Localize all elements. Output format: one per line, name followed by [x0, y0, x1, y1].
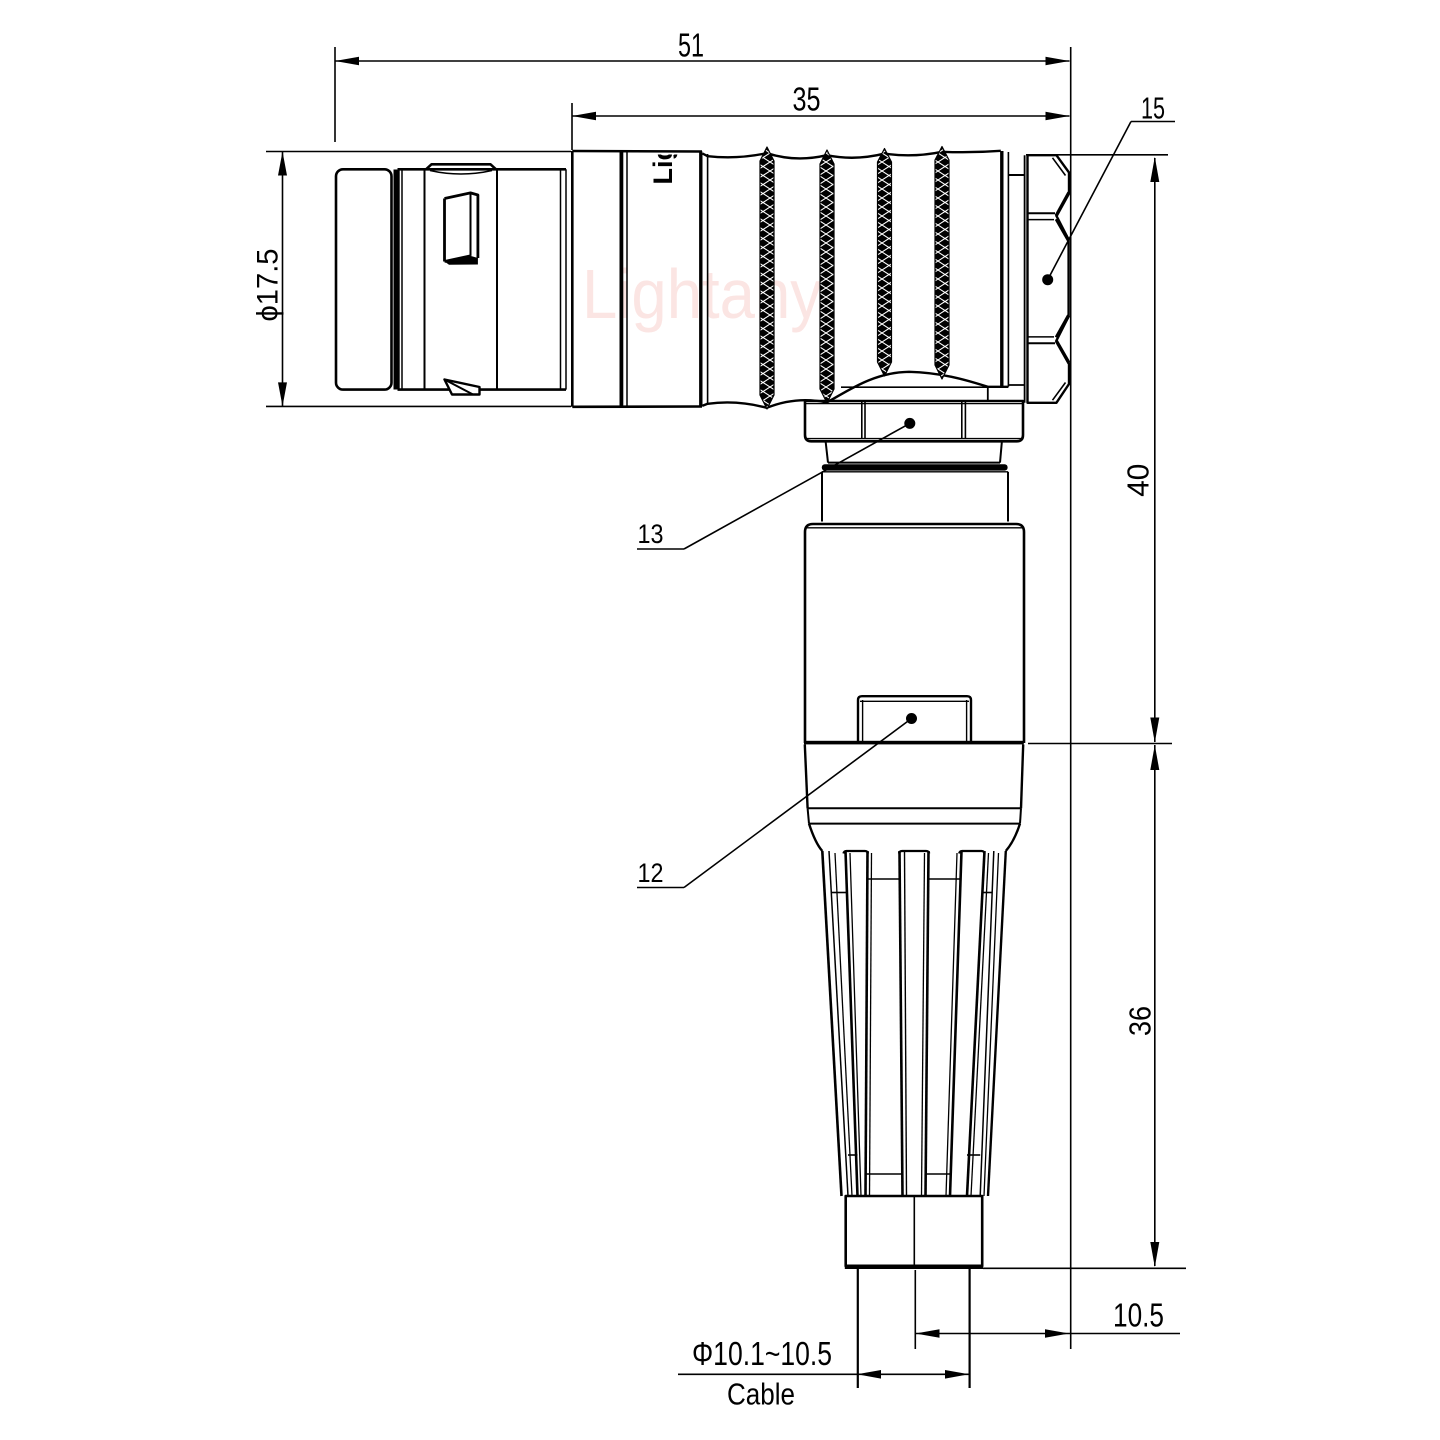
svg-text:36: 36: [1123, 1006, 1158, 1036]
svg-text:35: 35: [793, 81, 821, 118]
svg-text:Cable: Cable: [727, 1377, 795, 1412]
svg-text:12: 12: [638, 858, 664, 888]
svg-text:ϕ17.5: ϕ17.5: [252, 249, 285, 322]
svg-text:15: 15: [1141, 90, 1165, 125]
svg-text:40: 40: [1120, 464, 1155, 497]
svg-text:10.5: 10.5: [1113, 1297, 1164, 1334]
svg-text:51: 51: [678, 27, 704, 64]
svg-text:Φ10.1~10.5: Φ10.1~10.5: [692, 1335, 832, 1372]
svg-text:13: 13: [638, 519, 664, 549]
